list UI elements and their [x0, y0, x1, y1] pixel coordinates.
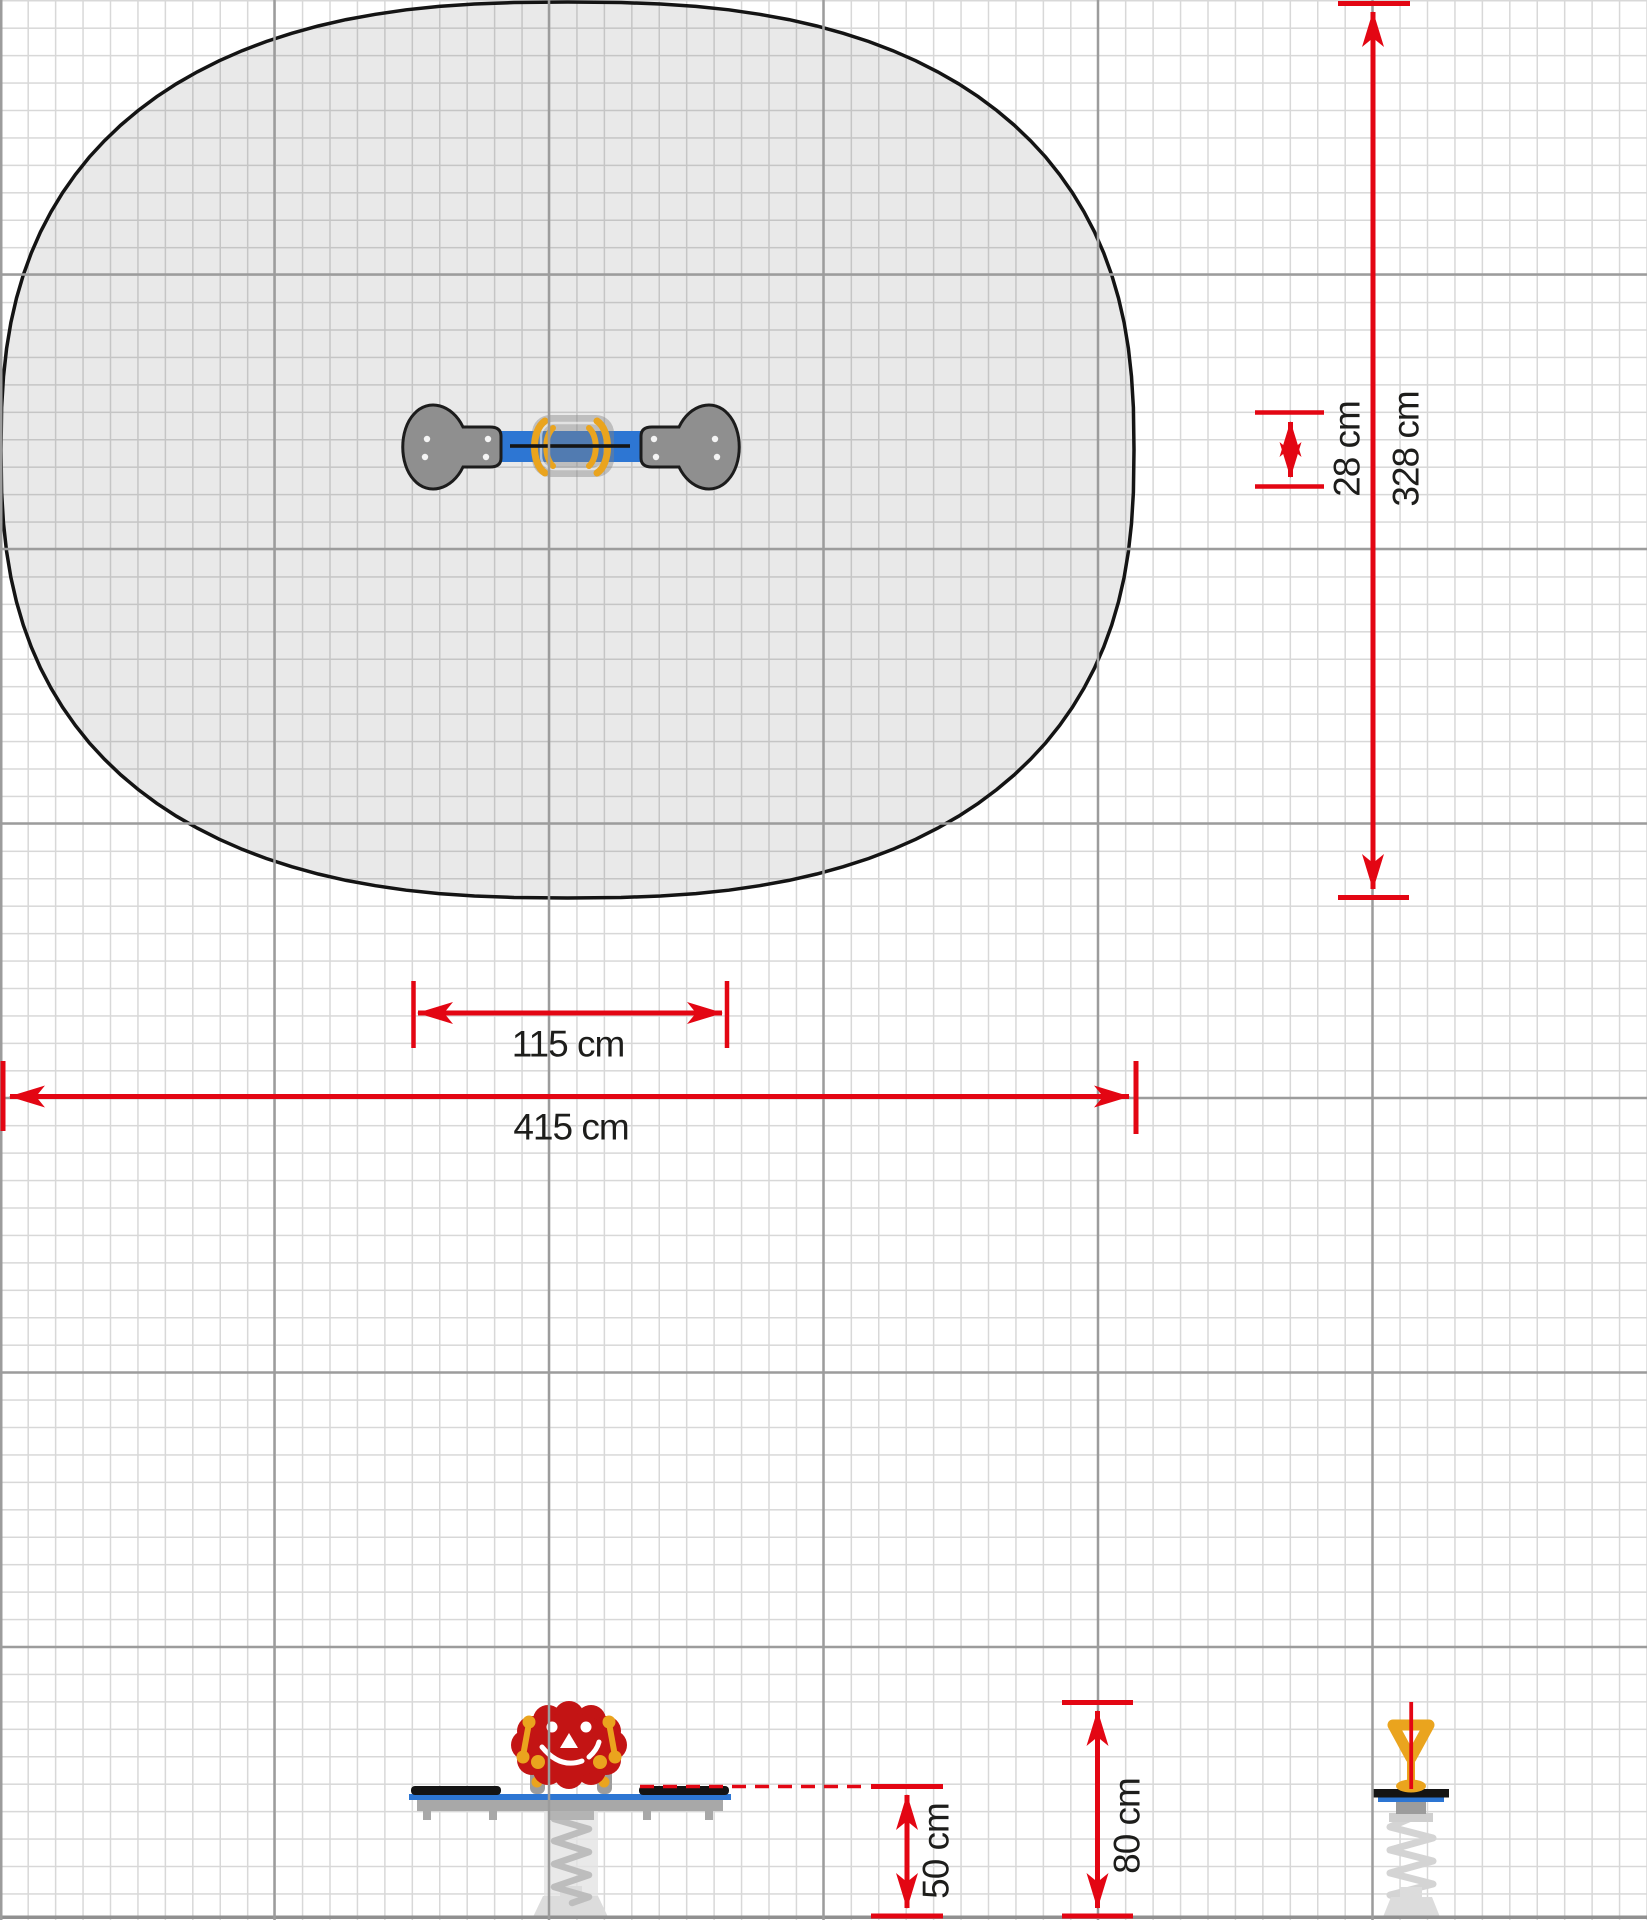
spring-rocker-end-view-icon [1373, 1702, 1449, 1917]
zone-length-label: 415 cm [513, 1109, 628, 1146]
seat-height-label: 50 cm [918, 1803, 955, 1899]
equipment-length-label: 115 cm [512, 1026, 625, 1063]
seesaw-top-view-icon [403, 405, 740, 489]
spring-rocker-side-view-icon [409, 1701, 731, 1917]
pivot-axis-line [510, 444, 630, 448]
dim-equipment-width [1255, 413, 1324, 487]
plan-drawing [0, 0, 1647, 1920]
handle-height-label: 80 cm [1109, 1778, 1146, 1874]
seat-pad-left [411, 1786, 501, 1795]
center-axis-redline [1409, 1702, 1413, 1789]
rocker-board [417, 1799, 723, 1811]
plan-canvas: 115 cm 415 cm 28 cm 328 cm 50 cm 80 cm [0, 0, 1647, 1920]
zone-width-label: 328 cm [1388, 391, 1425, 506]
equipment-width-label: 28 cm [1329, 401, 1366, 497]
